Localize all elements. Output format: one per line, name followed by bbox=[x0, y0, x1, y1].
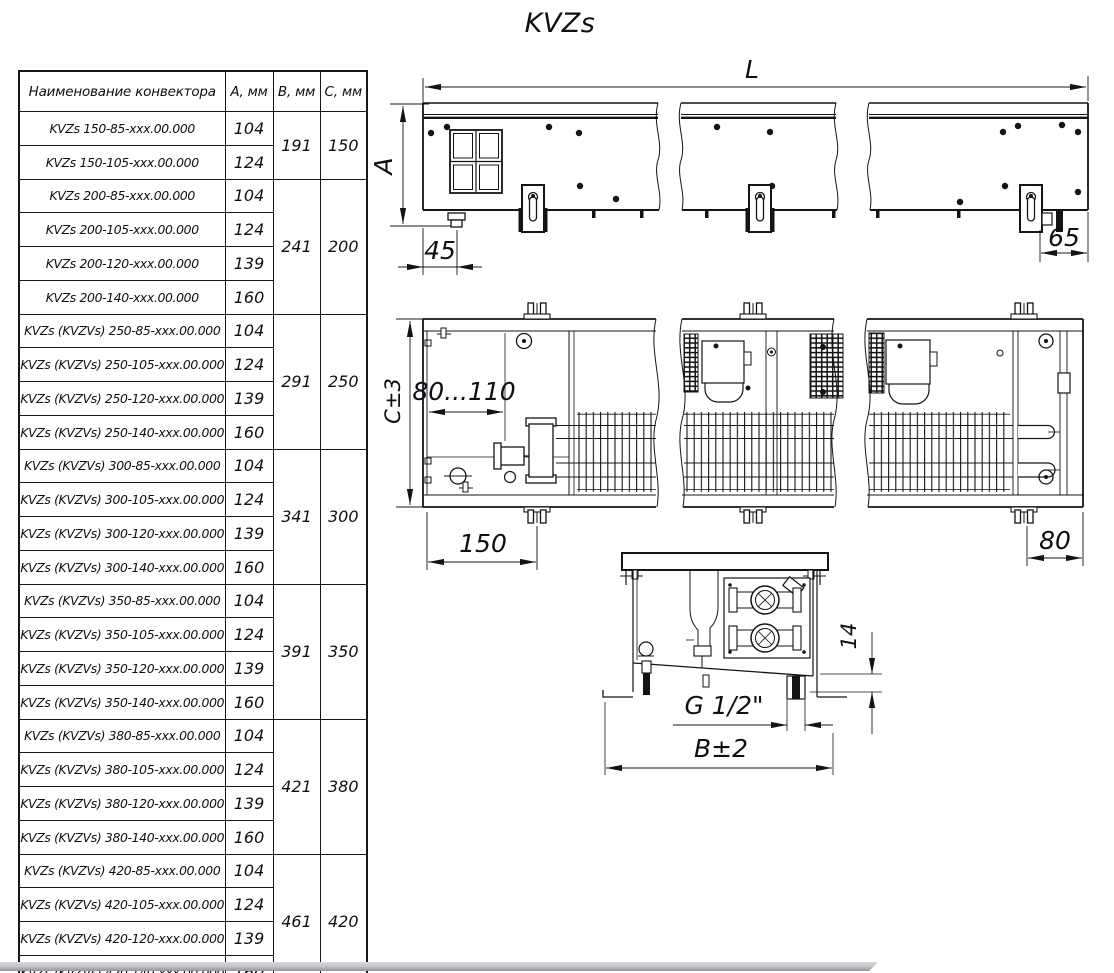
technical-drawing: L A bbox=[370, 40, 1114, 973]
table-row: KVZs 150-85-xxx.00.000104191150 bbox=[19, 112, 367, 146]
latch bbox=[638, 642, 654, 695]
pipe-ends bbox=[1018, 426, 1060, 478]
dim-b-cell: 191 bbox=[273, 112, 320, 180]
front-view: L A bbox=[370, 55, 1088, 275]
converter-name-cell: KVZs (KVZVs) 380-105-xxx.00.000 bbox=[19, 753, 225, 787]
dim-b-cell: 391 bbox=[273, 584, 320, 719]
dim-label-width: B±2 bbox=[694, 734, 748, 763]
converter-name-cell: KVZs (KVZVs) 250-105-xxx.00.000 bbox=[19, 348, 225, 382]
converter-name-cell: KVZs (KVZVs) 300-105-xxx.00.000 bbox=[19, 483, 225, 517]
converter-name-cell: KVZs 200-105-xxx.00.000 bbox=[19, 213, 225, 247]
mounting-bracket bbox=[519, 185, 548, 232]
converter-name-cell: KVZs 150-105-xxx.00.000 bbox=[19, 145, 225, 179]
heat-exchanger-fins bbox=[556, 412, 1013, 492]
dim-a-cell: 160 bbox=[225, 550, 273, 584]
dim-a-cell: 139 bbox=[225, 247, 273, 281]
dim-a-cell: 104 bbox=[225, 179, 273, 213]
converter-name-cell: KVZs (KVZVs) 300-120-xxx.00.000 bbox=[19, 517, 225, 551]
dim-a-cell: 160 bbox=[225, 820, 273, 854]
datasheet-page: KVZs Наименование конвектора А, мм В, мм… bbox=[0, 0, 1114, 973]
dim-a-cell: 124 bbox=[225, 145, 273, 179]
break-line bbox=[656, 103, 660, 210]
dim-c-cell: 380 bbox=[320, 719, 367, 854]
section-view: 14 G 1/2" B±2 bbox=[603, 553, 882, 775]
dim-a-cell: 104 bbox=[225, 314, 273, 348]
dim-label-connection-zone: 80...110 bbox=[412, 377, 515, 406]
converter-name-cell: KVZs (KVZVs) 300-85-xxx.00.000 bbox=[19, 449, 225, 483]
dim-a-cell: 139 bbox=[225, 517, 273, 551]
dim-a-cell: 160 bbox=[225, 685, 273, 719]
col-header-c: С, мм bbox=[320, 71, 367, 112]
converter-name-cell: KVZs 200-85-xxx.00.000 bbox=[19, 179, 225, 213]
dim-label-protrusion: 14 bbox=[837, 623, 861, 650]
dim-label-foot-offset: 45 bbox=[424, 236, 456, 265]
dim-a-cell: 104 bbox=[225, 584, 273, 618]
table-header-row: Наименование конвектора А, мм В, мм С, м… bbox=[19, 71, 367, 112]
dim-a-cell: 104 bbox=[225, 449, 273, 483]
dim-a-cell: 160 bbox=[225, 280, 273, 314]
converter-name-cell: KVZs (KVZVs) 250-120-xxx.00.000 bbox=[19, 382, 225, 416]
bottom-pipe bbox=[787, 676, 805, 699]
table-row: KVZs (KVZVs) 420-85-xxx.00.000104461420 bbox=[19, 854, 367, 888]
dim-label-bracket-offset: 150 bbox=[459, 529, 507, 558]
spec-table-body: KVZs 150-85-xxx.00.000104191150KVZs 150-… bbox=[19, 112, 367, 973]
converter-name-cell: KVZs 200-120-xxx.00.000 bbox=[19, 247, 225, 281]
dim-b-cell: 291 bbox=[273, 314, 320, 449]
converter-name-cell: KVZs (KVZVs) 420-120-xxx.00.000 bbox=[19, 922, 225, 956]
converter-name-cell: KVZs (KVZVs) 250-85-xxx.00.000 bbox=[19, 314, 225, 348]
pipe-union-panel bbox=[724, 577, 810, 658]
dim-a-cell: 139 bbox=[225, 652, 273, 686]
valve-assembly bbox=[425, 328, 569, 492]
col-header-b: В, мм bbox=[273, 71, 320, 112]
dim-c-cell: 420 bbox=[320, 854, 367, 973]
dim-a-cell: 139 bbox=[225, 787, 273, 821]
break-line bbox=[867, 103, 871, 210]
dim-c-cell: 300 bbox=[320, 449, 367, 584]
dim-a-cell: 124 bbox=[225, 753, 273, 787]
table-row: KVZs (KVZVs) 350-85-xxx.00.000104391350 bbox=[19, 584, 367, 618]
dim-label-bracket-end-offset: 80 bbox=[1039, 526, 1071, 555]
spec-table: Наименование конвектора А, мм В, мм С, м… bbox=[18, 70, 368, 973]
drain-funnel bbox=[686, 571, 718, 668]
dim-c-cell: 350 bbox=[320, 584, 367, 719]
bottom-panel bbox=[633, 663, 813, 676]
dim-c-cell: 150 bbox=[320, 112, 367, 180]
top-plate bbox=[622, 553, 828, 570]
break-line bbox=[834, 103, 838, 210]
converter-name-cell: KVZs (KVZVs) 350-140-xxx.00.000 bbox=[19, 685, 225, 719]
table-row: KVZs (KVZVs) 250-85-xxx.00.000104291250 bbox=[19, 314, 367, 348]
air-grille bbox=[450, 130, 502, 193]
converter-name-cell: KVZs (KVZVs) 380-140-xxx.00.000 bbox=[19, 820, 225, 854]
dim-label-depth: C±3 bbox=[381, 378, 405, 424]
dim-c-cell: 200 bbox=[320, 179, 367, 314]
col-header-name: Наименование конвектора bbox=[19, 71, 225, 112]
converter-name-cell: KVZs (KVZVs) 350-85-xxx.00.000 bbox=[19, 584, 225, 618]
dim-b-cell: 241 bbox=[273, 179, 320, 314]
dim-b-cell: 421 bbox=[273, 719, 320, 854]
dim-a-cell: 124 bbox=[225, 888, 273, 922]
converter-name-cell: KVZs (KVZVs) 350-105-xxx.00.000 bbox=[19, 618, 225, 652]
dim-a-cell: 124 bbox=[225, 618, 273, 652]
page-title: KVZs bbox=[460, 8, 660, 39]
dim-b-cell: 461 bbox=[273, 854, 320, 973]
dim-a-cell: 104 bbox=[225, 112, 273, 146]
table-row: KVZs (KVZVs) 300-85-xxx.00.000104341300 bbox=[19, 449, 367, 483]
converter-name-cell: KVZs 150-85-xxx.00.000 bbox=[19, 112, 225, 146]
dim-a-cell: 124 bbox=[225, 213, 273, 247]
dim-a-cell: 124 bbox=[225, 483, 273, 517]
col-header-a: А, мм bbox=[225, 71, 273, 112]
converter-name-cell: KVZs 200-140-xxx.00.000 bbox=[19, 280, 225, 314]
converter-name-cell: KVZs (KVZVs) 420-85-xxx.00.000 bbox=[19, 854, 225, 888]
plan-view: C±3 bbox=[381, 303, 1083, 570]
dim-label-end-offset: 65 bbox=[1048, 223, 1080, 252]
dim-c-cell: 250 bbox=[320, 314, 367, 449]
dim-a-cell: 160 bbox=[225, 415, 273, 449]
dim-a-cell: 104 bbox=[225, 854, 273, 888]
break-line bbox=[679, 103, 683, 210]
table-row: KVZs (KVZVs) 380-85-xxx.00.000104421380 bbox=[19, 719, 367, 753]
converter-name-cell: KVZs (KVZVs) 380-120-xxx.00.000 bbox=[19, 787, 225, 821]
converter-name-cell: KVZs (KVZVs) 420-105-xxx.00.000 bbox=[19, 888, 225, 922]
converter-name-cell: KVZs (KVZVs) 250-140-xxx.00.000 bbox=[19, 415, 225, 449]
mounting-bracket bbox=[746, 185, 775, 232]
dim-label-length: L bbox=[745, 55, 759, 84]
dim-a-cell: 139 bbox=[225, 382, 273, 416]
page-edge-artifact bbox=[0, 962, 878, 971]
dim-label-height: A bbox=[370, 157, 398, 176]
dim-a-cell: 124 bbox=[225, 348, 273, 382]
dim-b-cell: 341 bbox=[273, 449, 320, 584]
converter-name-cell: KVZs (KVZVs) 380-85-xxx.00.000 bbox=[19, 719, 225, 753]
converter-name-cell: KVZs (KVZVs) 300-140-xxx.00.000 bbox=[19, 550, 225, 584]
dim-a-cell: 139 bbox=[225, 922, 273, 956]
table-row: KVZs 200-85-xxx.00.000104241200 bbox=[19, 179, 367, 213]
converter-name-cell: KVZs (KVZVs) 350-120-xxx.00.000 bbox=[19, 652, 225, 686]
dim-a-cell: 104 bbox=[225, 719, 273, 753]
dim-label-pipe-thread: G 1/2" bbox=[684, 691, 763, 720]
